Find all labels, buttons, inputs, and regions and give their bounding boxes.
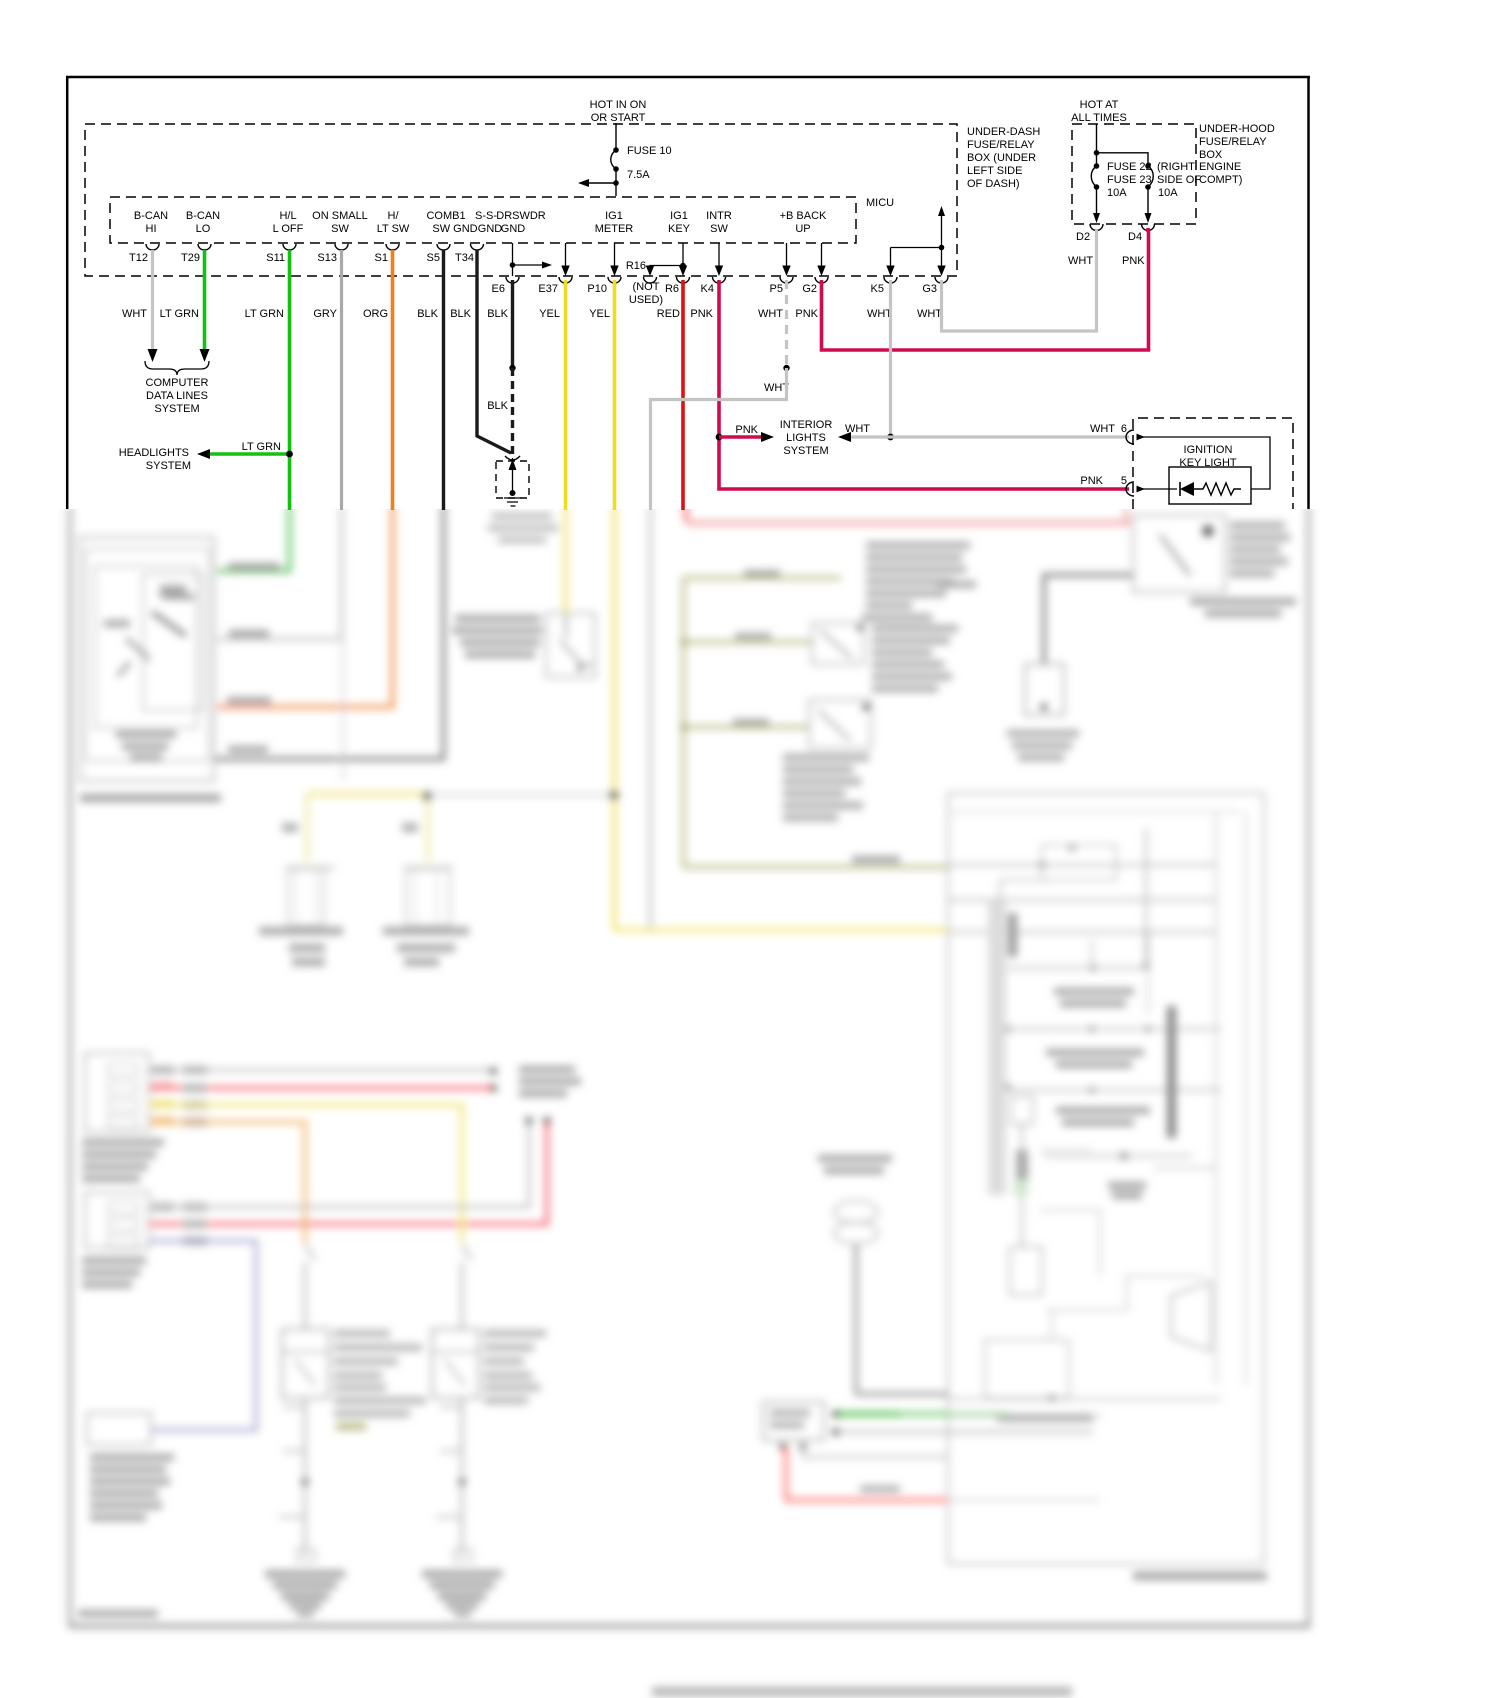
svg-text:PNK: PNK bbox=[1080, 475, 1103, 487]
svg-text:LT SW: LT SW bbox=[377, 223, 410, 235]
svg-text:LT GRN: LT GRN bbox=[245, 308, 284, 320]
svg-text:+B BACK: +B BACK bbox=[780, 210, 827, 222]
svg-text:COMPT): COMPT) bbox=[1199, 174, 1242, 186]
svg-text:SYSTEM: SYSTEM bbox=[154, 403, 199, 415]
svg-text:INTERIOR: INTERIOR bbox=[780, 419, 833, 431]
svg-text:RED: RED bbox=[657, 308, 680, 320]
svg-text:R6: R6 bbox=[665, 283, 679, 295]
svg-text:6: 6 bbox=[1121, 423, 1127, 435]
svg-text:E6: E6 bbox=[492, 283, 505, 295]
svg-text:ALL TIMES: ALL TIMES bbox=[1071, 112, 1127, 124]
svg-text:GND: GND bbox=[478, 223, 503, 235]
svg-text:UNDER-HOOD: UNDER-HOOD bbox=[1199, 123, 1275, 135]
svg-text:BLK: BLK bbox=[487, 400, 508, 412]
svg-text:LEFT SIDE: LEFT SIDE bbox=[967, 165, 1022, 177]
svg-text:H/: H/ bbox=[388, 210, 400, 222]
svg-text:E37: E37 bbox=[538, 283, 558, 295]
svg-text:P5: P5 bbox=[770, 283, 783, 295]
svg-text:WHT: WHT bbox=[122, 308, 147, 320]
svg-text:PNK: PNK bbox=[1122, 255, 1145, 267]
svg-text:10A: 10A bbox=[1107, 187, 1127, 199]
svg-text:S13: S13 bbox=[317, 252, 337, 264]
svg-text:IGNITION: IGNITION bbox=[1184, 444, 1233, 456]
svg-text:OR START: OR START bbox=[591, 112, 646, 124]
svg-text:T12: T12 bbox=[129, 252, 148, 264]
svg-text:UNDER-DASH: UNDER-DASH bbox=[967, 126, 1040, 138]
svg-text:B-CAN: B-CAN bbox=[186, 210, 220, 222]
svg-text:LIGHTS: LIGHTS bbox=[786, 432, 826, 444]
svg-text:GND: GND bbox=[501, 223, 526, 235]
svg-text:SW GND: SW GND bbox=[432, 223, 477, 235]
svg-text:SW: SW bbox=[331, 223, 349, 235]
svg-text:SYSTEM: SYSTEM bbox=[146, 460, 191, 472]
svg-text:R16: R16 bbox=[626, 260, 646, 272]
svg-text:IG1: IG1 bbox=[670, 210, 688, 222]
svg-text:LO: LO bbox=[196, 223, 211, 235]
svg-text:10A: 10A bbox=[1158, 187, 1178, 199]
svg-text:P10: P10 bbox=[587, 283, 607, 295]
svg-text:L OFF: L OFF bbox=[273, 223, 304, 235]
svg-text:S1: S1 bbox=[375, 252, 388, 264]
svg-text:SW: SW bbox=[710, 223, 728, 235]
svg-text:WHT: WHT bbox=[758, 308, 783, 320]
svg-text:FUSE 23: FUSE 23 bbox=[1107, 174, 1152, 186]
svg-text:DATA LINES: DATA LINES bbox=[146, 390, 208, 402]
svg-text:ENGINE: ENGINE bbox=[1199, 161, 1241, 173]
svg-text:T34: T34 bbox=[455, 252, 474, 264]
svg-text:BOX (UNDER: BOX (UNDER bbox=[967, 152, 1036, 164]
svg-text:UP: UP bbox=[795, 223, 810, 235]
svg-text:5: 5 bbox=[1121, 475, 1127, 487]
svg-text:BLK: BLK bbox=[450, 308, 471, 320]
svg-text:METER: METER bbox=[595, 223, 634, 235]
svg-text:USED): USED) bbox=[629, 294, 663, 306]
svg-text:7.5A: 7.5A bbox=[627, 169, 650, 181]
svg-text:PNK: PNK bbox=[795, 308, 818, 320]
svg-text:D4: D4 bbox=[1128, 231, 1142, 243]
svg-text:S-S-: S-S- bbox=[475, 210, 497, 222]
svg-text:PNK: PNK bbox=[735, 424, 758, 436]
svg-text:HOT IN ON: HOT IN ON bbox=[590, 99, 647, 111]
svg-text:FUSE 10: FUSE 10 bbox=[627, 145, 672, 157]
svg-text:(NOT: (NOT bbox=[633, 281, 660, 293]
svg-text:YEL: YEL bbox=[539, 308, 560, 320]
svg-text:WHT: WHT bbox=[1068, 255, 1093, 267]
svg-text:K4: K4 bbox=[701, 283, 714, 295]
svg-text:(RIGHT: (RIGHT bbox=[1157, 161, 1195, 173]
svg-text:SIDE OF: SIDE OF bbox=[1157, 174, 1201, 186]
svg-text:ORG: ORG bbox=[363, 308, 388, 320]
svg-text:LT GRN: LT GRN bbox=[242, 441, 281, 453]
svg-text:SYSTEM: SYSTEM bbox=[783, 445, 828, 457]
svg-text:WHT: WHT bbox=[917, 308, 942, 320]
svg-text:DRSWDR: DRSWDR bbox=[496, 210, 546, 222]
svg-text:YEL: YEL bbox=[589, 308, 610, 320]
svg-text:D2: D2 bbox=[1076, 231, 1090, 243]
svg-text:G2: G2 bbox=[802, 283, 817, 295]
svg-text:K5: K5 bbox=[871, 283, 884, 295]
svg-text:LT GRN: LT GRN bbox=[160, 308, 199, 320]
svg-text:COMB1: COMB1 bbox=[426, 210, 465, 222]
svg-text:BOX: BOX bbox=[1199, 149, 1223, 161]
svg-text:G3: G3 bbox=[922, 283, 937, 295]
svg-text:S11: S11 bbox=[266, 252, 285, 264]
svg-text:COMPUTER: COMPUTER bbox=[146, 377, 209, 389]
svg-text:S5: S5 bbox=[427, 252, 440, 264]
svg-text:KEY: KEY bbox=[668, 223, 691, 235]
svg-text:BLK: BLK bbox=[417, 308, 438, 320]
svg-text:PNK: PNK bbox=[690, 308, 713, 320]
svg-text:HEADLIGHTS: HEADLIGHTS bbox=[119, 447, 189, 459]
svg-text:B-CAN: B-CAN bbox=[134, 210, 168, 222]
svg-text:WHT: WHT bbox=[1090, 423, 1115, 435]
svg-text:HI: HI bbox=[146, 223, 157, 235]
svg-text:IG1: IG1 bbox=[605, 210, 623, 222]
svg-text:FUSE/RELAY: FUSE/RELAY bbox=[967, 139, 1035, 151]
svg-text:MICU: MICU bbox=[866, 197, 894, 209]
svg-text:WHT: WHT bbox=[867, 308, 892, 320]
svg-text:ON SMALL: ON SMALL bbox=[312, 210, 368, 222]
svg-text:OF DASH): OF DASH) bbox=[967, 178, 1020, 190]
svg-text:FUSE/RELAY: FUSE/RELAY bbox=[1199, 136, 1267, 148]
svg-text:GRY: GRY bbox=[313, 308, 337, 320]
svg-text:H/L: H/L bbox=[279, 210, 296, 222]
svg-text:T29: T29 bbox=[181, 252, 200, 264]
svg-text:INTR: INTR bbox=[706, 210, 732, 222]
svg-text:FUSE 22: FUSE 22 bbox=[1107, 161, 1152, 173]
svg-text:HOT AT: HOT AT bbox=[1080, 99, 1119, 111]
